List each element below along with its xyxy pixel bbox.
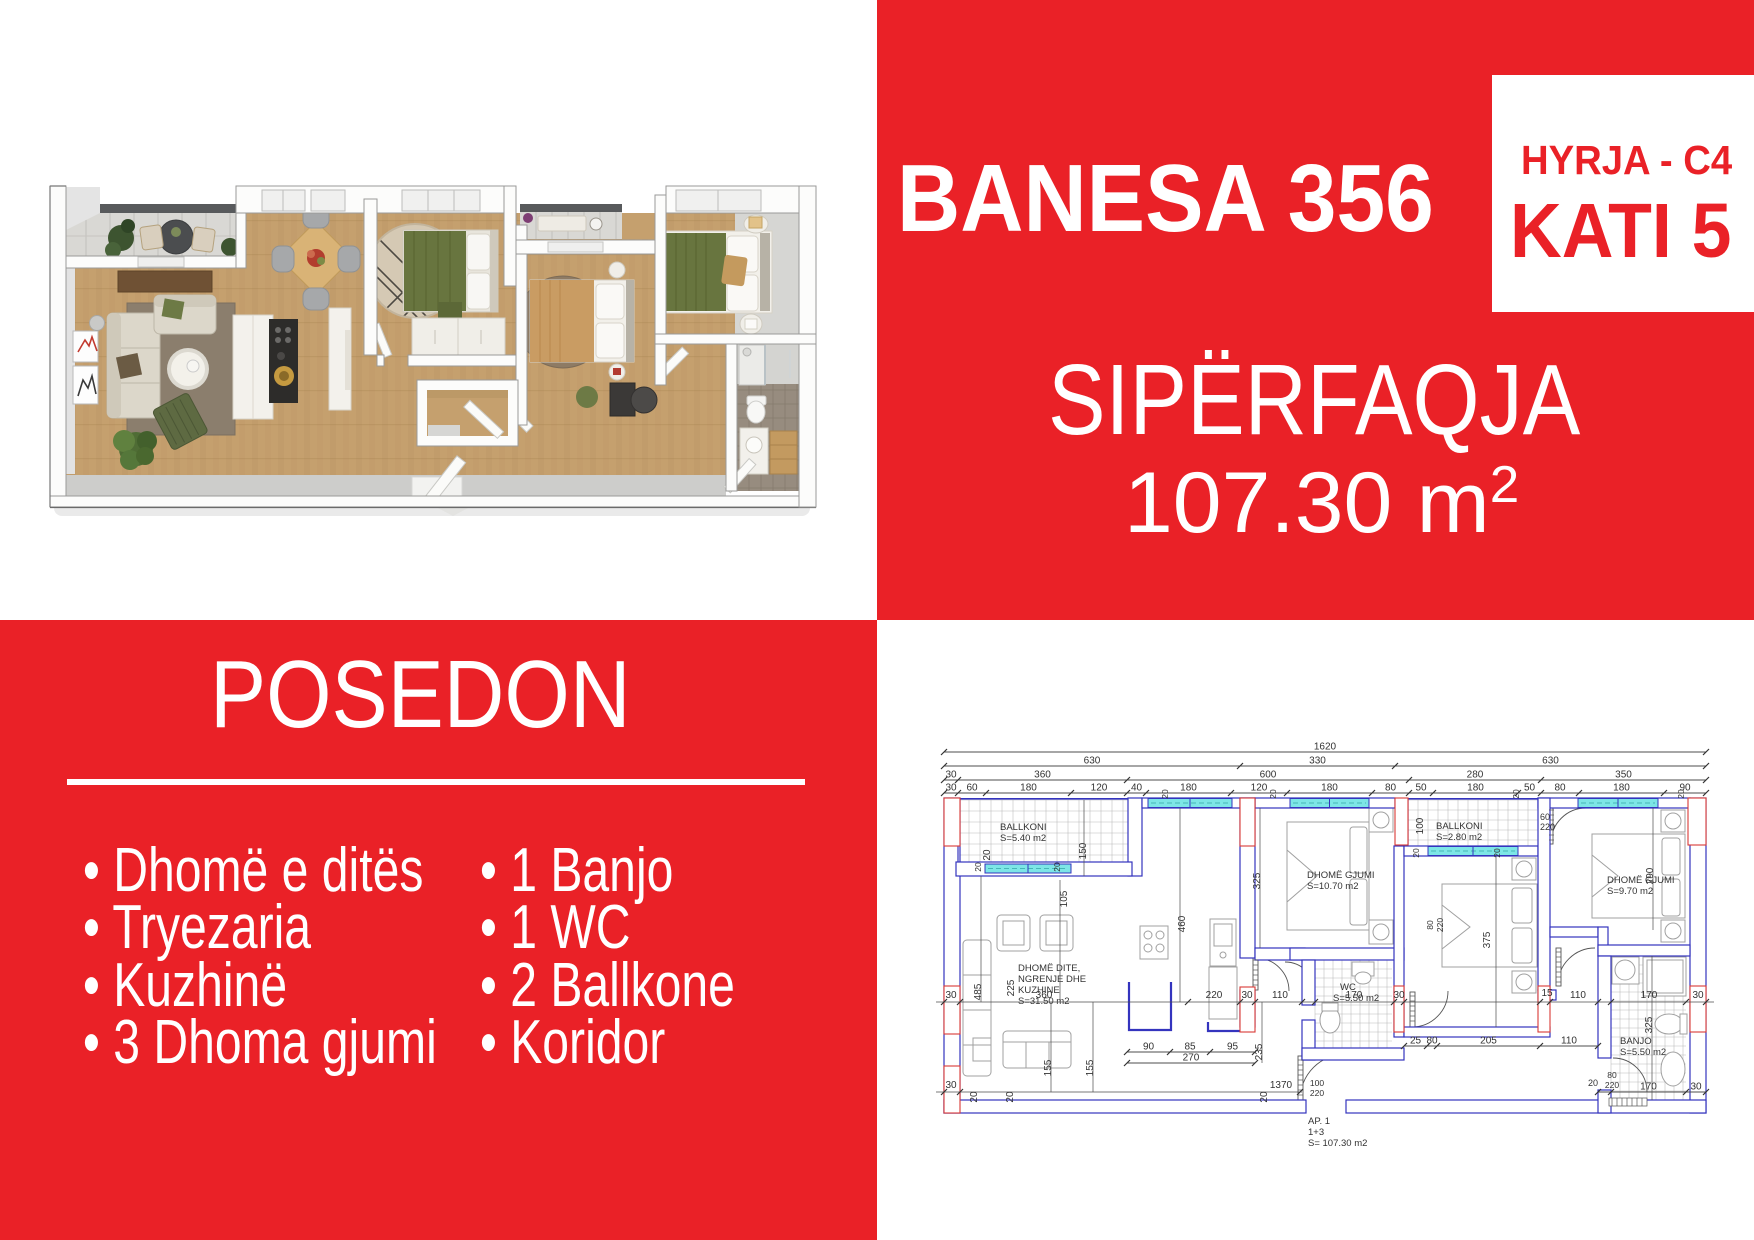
svg-text:DHOMË GJUMI: DHOMË GJUMI [1607, 875, 1675, 886]
svg-text:1620: 1620 [1314, 742, 1337, 753]
svg-text:30: 30 [1692, 990, 1704, 1001]
svg-text:235: 235 [1254, 1043, 1265, 1060]
svg-text:50: 50 [1415, 783, 1427, 794]
svg-text:20: 20 [1511, 789, 1521, 799]
svg-text:150: 150 [1078, 842, 1089, 859]
svg-text:155: 155 [1043, 1059, 1054, 1076]
svg-text:30: 30 [945, 1080, 957, 1091]
svg-text:110: 110 [1272, 990, 1288, 1001]
svg-text:S= 107.30 m2: S= 107.30 m2 [1308, 1138, 1367, 1149]
svg-text:630: 630 [1542, 756, 1559, 767]
svg-text:290: 290 [1645, 867, 1656, 884]
svg-text:BALLKONI: BALLKONI [1436, 821, 1482, 832]
svg-text:170: 170 [1641, 990, 1658, 1001]
svg-text:280: 280 [1467, 770, 1484, 781]
svg-text:30: 30 [945, 783, 957, 794]
svg-text:30: 30 [945, 990, 957, 1001]
svg-text:360: 360 [1036, 990, 1053, 1001]
svg-text:630: 630 [1084, 756, 1101, 767]
svg-text:DHOMË GJUMI: DHOMË GJUMI [1307, 870, 1375, 881]
svg-text:60: 60 [966, 783, 978, 794]
svg-text:20: 20 [1005, 1091, 1016, 1103]
svg-text:220: 220 [1206, 990, 1223, 1001]
svg-text:30: 30 [1241, 990, 1253, 1001]
svg-text:120: 120 [1251, 783, 1268, 794]
svg-text:180: 180 [1467, 783, 1484, 794]
svg-text:220: 220 [1310, 1088, 1324, 1098]
svg-text:BALLKONI: BALLKONI [1000, 822, 1046, 833]
svg-text:485: 485 [973, 983, 984, 1000]
svg-text:20: 20 [969, 1091, 980, 1103]
svg-text:170: 170 [1346, 990, 1363, 1001]
svg-text:NGRENJE DHE: NGRENJE DHE [1018, 974, 1086, 985]
svg-text:105: 105 [1059, 890, 1070, 907]
svg-text:20: 20 [1588, 1078, 1598, 1088]
svg-text:460: 460 [1177, 915, 1188, 932]
svg-text:170: 170 [1640, 1082, 1657, 1093]
svg-text:220: 220 [1435, 918, 1445, 932]
svg-text:270: 270 [1183, 1053, 1200, 1064]
svg-text:20: 20 [1160, 789, 1170, 799]
svg-text:180: 180 [1613, 783, 1630, 794]
svg-text:20: 20 [1411, 848, 1421, 858]
svg-text:375: 375 [1482, 931, 1493, 948]
svg-text:S=5.40 m2: S=5.40 m2 [1000, 833, 1046, 844]
svg-text:S=10.70 m2: S=10.70 m2 [1307, 881, 1359, 892]
svg-text:S=9.70 m2: S=9.70 m2 [1607, 886, 1653, 897]
svg-text:325: 325 [1252, 872, 1263, 889]
svg-text:330: 330 [1309, 756, 1326, 767]
svg-text:50: 50 [1524, 783, 1536, 794]
svg-text:100: 100 [1310, 1078, 1324, 1088]
svg-text:20: 20 [1052, 862, 1062, 872]
svg-text:20: 20 [982, 849, 993, 861]
svg-text:155: 155 [1085, 1059, 1096, 1076]
svg-text:30: 30 [1393, 990, 1405, 1001]
svg-text:S=2.80 m2: S=2.80 m2 [1436, 832, 1482, 843]
svg-text:15: 15 [1541, 988, 1553, 999]
svg-text:20: 20 [1268, 789, 1278, 799]
svg-text:20: 20 [1676, 789, 1686, 799]
svg-text:20: 20 [973, 862, 983, 872]
svg-text:325: 325 [1644, 1016, 1655, 1033]
svg-text:25: 25 [1410, 1036, 1422, 1047]
svg-text:600: 600 [1260, 770, 1277, 781]
svg-text:40: 40 [1131, 783, 1143, 794]
svg-text:205: 205 [1480, 1036, 1497, 1047]
svg-text:1370: 1370 [1270, 1080, 1293, 1091]
svg-text:80: 80 [1554, 783, 1566, 794]
svg-text:100: 100 [1415, 817, 1426, 834]
svg-text:DHOMË DITE,: DHOMË DITE, [1018, 963, 1080, 974]
svg-text:30: 30 [945, 770, 957, 781]
svg-text:120: 120 [1091, 783, 1108, 794]
svg-text:220: 220 [1540, 822, 1555, 832]
svg-text:S=5.50 m2: S=5.50 m2 [1620, 1047, 1666, 1058]
svg-text:180: 180 [1180, 783, 1197, 794]
svg-text:220: 220 [1605, 1080, 1619, 1090]
svg-text:225: 225 [1006, 979, 1017, 996]
svg-text:95: 95 [1227, 1042, 1239, 1053]
svg-text:110: 110 [1561, 1036, 1577, 1047]
svg-text:80: 80 [1425, 920, 1435, 930]
svg-text:90: 90 [1143, 1042, 1155, 1053]
svg-text:30: 30 [1690, 1082, 1702, 1093]
svg-text:180: 180 [1321, 783, 1338, 794]
svg-text:85: 85 [1184, 1042, 1196, 1053]
svg-text:60: 60 [1540, 812, 1550, 822]
svg-text:AP. 1: AP. 1 [1308, 1116, 1330, 1127]
svg-text:20: 20 [1259, 1091, 1270, 1103]
svg-text:80: 80 [1385, 783, 1397, 794]
svg-text:360: 360 [1034, 770, 1051, 781]
svg-text:1+3: 1+3 [1308, 1127, 1324, 1138]
svg-text:110: 110 [1570, 990, 1586, 1001]
svg-text:BANJO: BANJO [1620, 1036, 1652, 1047]
svg-text:20: 20 [1492, 848, 1502, 858]
svg-text:350: 350 [1615, 770, 1632, 781]
svg-text:180: 180 [1020, 783, 1037, 794]
svg-text:80: 80 [1426, 1036, 1438, 1047]
svg-text:80: 80 [1607, 1070, 1617, 1080]
